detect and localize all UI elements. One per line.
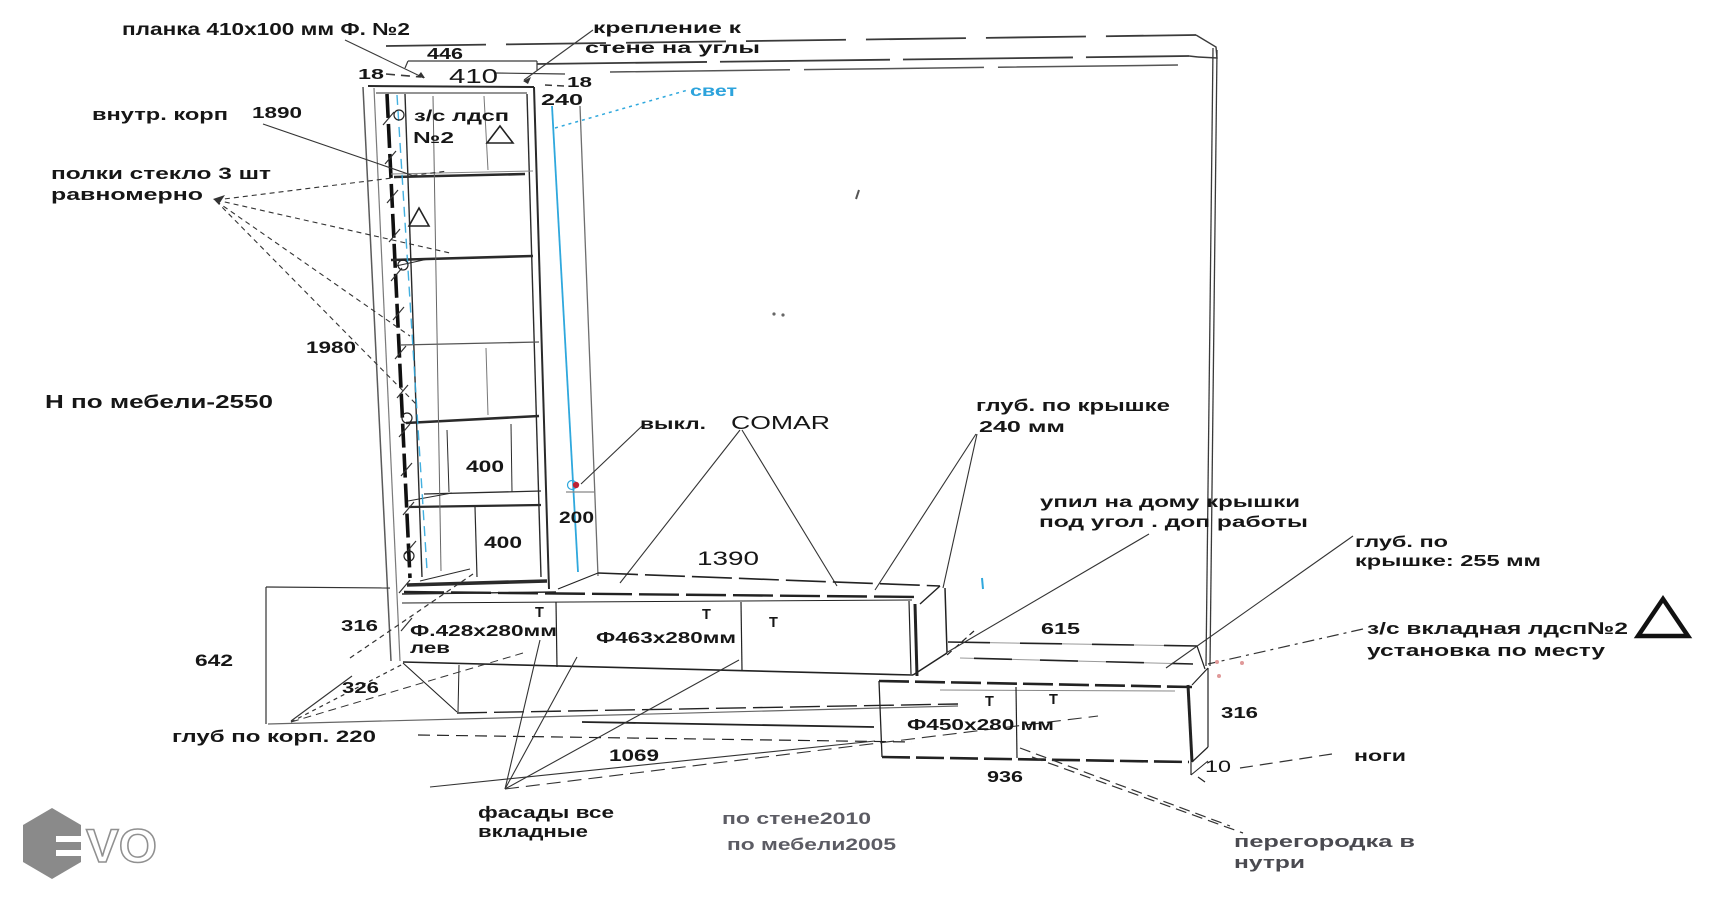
- svg-text:перегородка в: перегородка в: [1234, 832, 1415, 851]
- svg-text:з/с лдсп: з/с лдсп: [414, 108, 509, 125]
- svg-text:10: 10: [1205, 757, 1231, 776]
- svg-text:T: T: [702, 607, 711, 623]
- svg-text:446: 446: [427, 46, 464, 63]
- svg-text:ноги: ноги: [1354, 748, 1406, 765]
- svg-text:по мебели2005: по мебели2005: [727, 836, 896, 854]
- svg-text:1890: 1890: [252, 105, 302, 122]
- svg-text:1980: 1980: [306, 339, 356, 357]
- svg-text:Ф.428x280мм: Ф.428x280мм: [410, 623, 557, 640]
- svg-text:глуб. по крышке: глуб. по крышке: [976, 397, 1170, 415]
- svg-text:400: 400: [466, 458, 504, 476]
- svg-text:615: 615: [1041, 621, 1080, 638]
- svg-text:18: 18: [358, 66, 384, 83]
- svg-text:глуб. по: глуб. по: [1355, 534, 1448, 551]
- svg-text:внутр. корп: внутр. корп: [92, 106, 228, 124]
- svg-text:18: 18: [567, 74, 592, 91]
- svg-text:Ф450x280 мм: Ф450x280 мм: [907, 717, 1054, 734]
- svg-text:под угол . доп работы: под угол . доп работы: [1039, 514, 1308, 531]
- svg-text:з/с вкладная лдсп№2: з/с вкладная лдсп№2: [1367, 619, 1628, 638]
- svg-text:316: 316: [341, 618, 379, 635]
- svg-text:крепление к: крепление к: [593, 20, 743, 37]
- svg-text:T: T: [985, 694, 994, 710]
- svg-text:нутри: нутри: [1234, 853, 1305, 872]
- svg-text:выкл.: выкл.: [640, 416, 706, 433]
- svg-text:фасады все: фасады все: [478, 804, 614, 822]
- svg-text:VO: VO: [86, 819, 157, 872]
- svg-text:T: T: [1049, 692, 1058, 708]
- svg-text:240: 240: [541, 92, 583, 109]
- svg-text:крышке: 255 мм: крышке: 255 мм: [1355, 553, 1541, 570]
- svg-text:410: 410: [449, 66, 498, 88]
- svg-text:936: 936: [987, 769, 1023, 786]
- svg-text:свет: свет: [690, 83, 737, 100]
- svg-text:1069: 1069: [609, 747, 659, 765]
- svg-text:глуб по корп. 220: глуб по корп. 220: [172, 728, 376, 746]
- svg-text:№2: №2: [413, 130, 454, 147]
- svg-text:316: 316: [1221, 705, 1258, 722]
- svg-text:T: T: [769, 615, 778, 631]
- svg-text:по стене2010: по стене2010: [722, 810, 871, 828]
- svg-text:T: T: [535, 605, 544, 621]
- svg-text:240 мм: 240 мм: [979, 419, 1065, 436]
- svg-text:стене на углы: стене на углы: [585, 40, 760, 57]
- svg-text:200: 200: [559, 509, 594, 527]
- svg-text:планка 410x100 мм Ф. №2: планка 410x100 мм Ф. №2: [122, 19, 410, 39]
- svg-text:установка по месту: установка по месту: [1367, 641, 1606, 660]
- svg-text:упил на дому крышки: упил на дому крышки: [1040, 494, 1300, 511]
- svg-text:вкладные: вкладные: [478, 823, 588, 841]
- svg-text:Н по мебели-2550: Н по мебели-2550: [45, 392, 273, 412]
- svg-text:Ф463x280мм: Ф463x280мм: [596, 630, 736, 647]
- svg-text:полки стекло 3 шт: полки стекло 3 шт: [51, 164, 271, 183]
- svg-text:лев: лев: [410, 640, 450, 657]
- svg-text:COMAR: COMAR: [731, 413, 830, 433]
- svg-text:642: 642: [195, 652, 233, 670]
- svg-text:равномерно: равномерно: [51, 185, 203, 204]
- svg-text:1390: 1390: [697, 549, 759, 570]
- svg-text:400: 400: [484, 534, 522, 552]
- svg-text:326: 326: [342, 680, 379, 697]
